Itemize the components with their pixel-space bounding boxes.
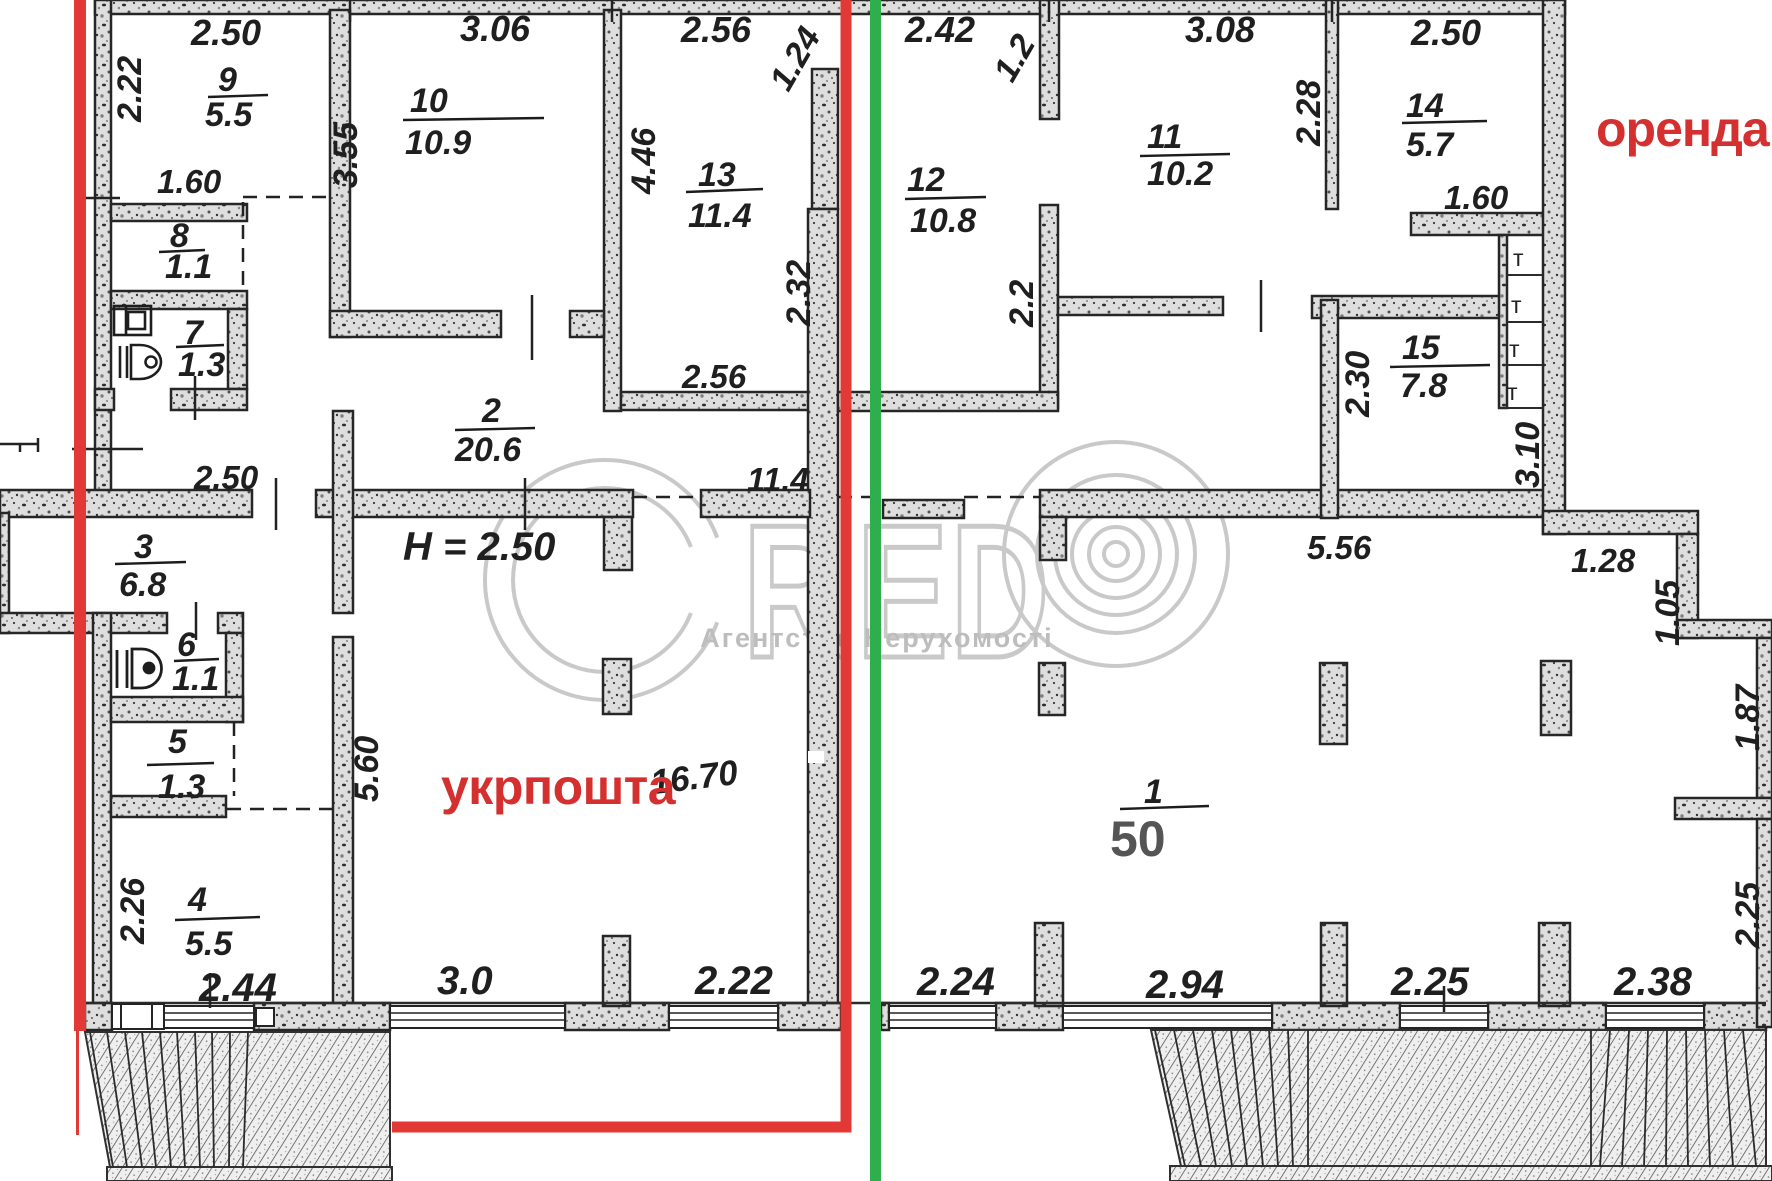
svg-text:11.4: 11.4	[688, 197, 752, 235]
svg-text:2.25: 2.25	[1390, 960, 1470, 1004]
svg-text:т: т	[1511, 292, 1522, 318]
svg-text:3.0: 3.0	[437, 959, 493, 1003]
svg-text:5.5: 5.5	[185, 925, 233, 963]
svg-text:2.50: 2.50	[190, 12, 261, 53]
svg-text:3.06: 3.06	[460, 8, 531, 49]
svg-text:50: 50	[1110, 811, 1166, 867]
svg-text:оренда: оренда	[1596, 101, 1771, 157]
svg-text:3.08: 3.08	[1185, 9, 1255, 50]
svg-text:укрпошта: укрпошта	[441, 759, 677, 815]
svg-text:т: т	[1513, 245, 1524, 271]
svg-text:1.1: 1.1	[165, 248, 212, 286]
svg-text:4: 4	[187, 881, 207, 919]
svg-text:13: 13	[698, 156, 736, 194]
svg-text:т: т	[1509, 336, 1520, 362]
svg-text:2.26: 2.26	[114, 877, 152, 945]
svg-text:2.56: 2.56	[681, 358, 747, 395]
svg-text:2.28: 2.28	[1290, 80, 1328, 147]
svg-text:2.56: 2.56	[680, 9, 752, 50]
svg-text:14: 14	[1406, 87, 1444, 125]
svg-text:2.30: 2.30	[1339, 351, 1377, 418]
svg-text:10.9: 10.9	[405, 124, 471, 162]
svg-text:1.3: 1.3	[178, 346, 225, 384]
svg-text:3: 3	[134, 528, 153, 566]
svg-text:6.8: 6.8	[119, 566, 166, 604]
svg-text:2.32: 2.32	[780, 260, 818, 327]
svg-text:1.60: 1.60	[1444, 179, 1509, 216]
svg-text:2.24: 2.24	[916, 960, 995, 1004]
svg-text:H = 2.50: H = 2.50	[403, 525, 555, 569]
svg-text:5.56: 5.56	[1307, 529, 1372, 566]
svg-text:11.4: 11.4	[747, 461, 809, 498]
svg-text:2.50: 2.50	[193, 459, 259, 496]
svg-text:20.6: 20.6	[454, 431, 522, 469]
svg-text:11: 11	[1147, 118, 1182, 156]
svg-text:2.25: 2.25	[1729, 881, 1767, 949]
svg-text:2.50: 2.50	[1410, 12, 1481, 53]
svg-text:1.3: 1.3	[158, 768, 205, 806]
svg-text:1.60: 1.60	[157, 163, 222, 200]
svg-text:15: 15	[1402, 329, 1441, 367]
svg-text:1.28: 1.28	[1571, 542, 1636, 579]
svg-text:1.87: 1.87	[1729, 683, 1767, 751]
svg-text:10: 10	[410, 82, 448, 120]
svg-text:10.8: 10.8	[910, 202, 976, 240]
svg-text:1: 1	[1144, 773, 1163, 811]
svg-text:3.55: 3.55	[327, 121, 365, 188]
svg-text:2.94: 2.94	[1145, 963, 1224, 1007]
svg-text:5: 5	[168, 723, 188, 761]
svg-text:6: 6	[177, 626, 197, 664]
svg-text:5.5: 5.5	[205, 96, 253, 134]
svg-text:2.42: 2.42	[904, 9, 975, 50]
svg-text:2: 2	[481, 392, 501, 430]
svg-text:1.05: 1.05	[1649, 579, 1687, 646]
svg-text:т: т	[1507, 379, 1518, 405]
svg-text:2.22: 2.22	[694, 959, 773, 1003]
svg-text:1.1: 1.1	[172, 660, 219, 698]
svg-text:3.10: 3.10	[1509, 422, 1547, 488]
svg-text:10.2: 10.2	[1147, 155, 1213, 193]
svg-text:2.44: 2.44	[198, 966, 277, 1010]
svg-text:2.22: 2.22	[111, 56, 149, 123]
svg-text:9: 9	[218, 61, 237, 99]
svg-text:5.7: 5.7	[1406, 126, 1455, 164]
svg-text:4.46: 4.46	[625, 127, 663, 195]
svg-text:7.8: 7.8	[1400, 367, 1447, 405]
svg-text:2.38: 2.38	[1613, 960, 1693, 1004]
svg-text:12: 12	[907, 161, 945, 199]
svg-text:2.2: 2.2	[1003, 280, 1041, 328]
svg-text:5.60: 5.60	[348, 736, 386, 802]
